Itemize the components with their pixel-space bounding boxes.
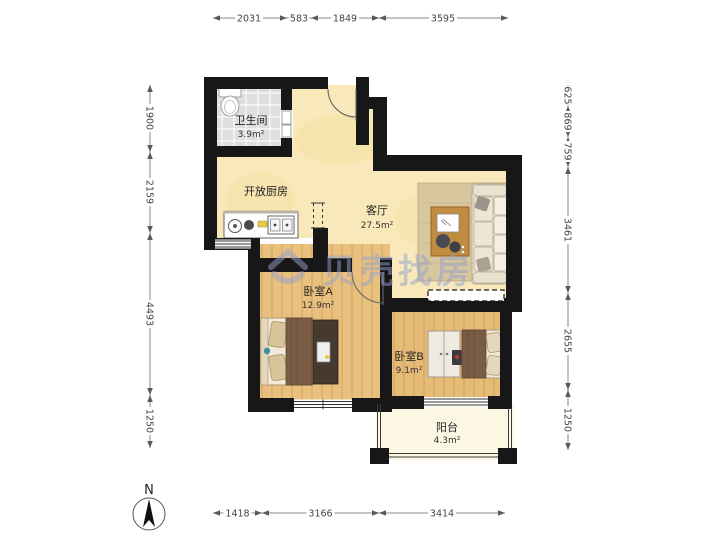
living-label: 客厅 [366,203,388,217]
svg-text:2655: 2655 [562,329,573,353]
svg-text:3461: 3461 [562,218,573,242]
kitchen-counter-icon [224,211,298,239]
svg-text:759: 759 [562,142,573,160]
floor-plan-page: 卫生间 3.9m² 开放厨房 客厅 27.5m² 卧室A 12.9m² 卧室B … [0,0,720,540]
bedroomB-window [424,397,488,407]
svg-text:3595: 3595 [431,14,455,25]
coffee-table-icon [431,207,469,256]
svg-text:869: 869 [562,112,573,130]
bathroom-area: 3.9m² [238,130,265,140]
dimension-bottom: 1418 3166 3414 [213,508,505,520]
balcony-label: 阳台 [436,420,458,434]
svg-text:4493: 4493 [144,302,155,326]
svg-text:1418: 1418 [225,509,249,520]
dimension-top: 2031 583 1849 3595 [213,13,508,25]
sofa-icon [472,184,508,284]
svg-text:1250: 1250 [562,408,573,432]
bedA-icon [261,318,338,385]
kitchen-label: 开放厨房 [244,184,288,198]
compass-north-label: N [144,483,154,498]
floor-texture [295,115,385,165]
balcony-area: 4.3m² [434,436,461,446]
floor-plan-drawing: 卫生间 3.9m² 开放厨房 客厅 27.5m² 卧室A 12.9m² 卧室B … [0,0,720,540]
compass: N [133,483,165,530]
bedroomB-area: 9.1m² [396,366,423,376]
bathroom-door-icon [280,110,293,138]
svg-text:1250: 1250 [144,409,155,433]
living-area: 27.5m² [361,221,394,231]
kitchen-window [215,240,251,249]
bedroomB-label: 卧室B [394,349,423,363]
bedB-icon [428,330,508,378]
svg-text:2031: 2031 [237,14,261,25]
bathroom-label: 卫生间 [235,113,268,127]
watermark-text: 贝壳找房 [322,253,474,291]
svg-text:1900: 1900 [144,106,155,130]
compass-north-icon [143,499,155,527]
toilet-icon [219,86,241,116]
svg-text:625: 625 [562,86,573,104]
svg-text:583: 583 [290,14,308,25]
bedroomA-area: 12.9m² [302,301,335,311]
svg-text:3414: 3414 [430,509,454,520]
svg-text:1849: 1849 [333,14,357,25]
dimension-left: 1900 2159 4493 1250 [144,85,156,448]
svg-text:2159: 2159 [144,180,155,204]
bedroomA-window [294,400,352,410]
bedroomB-sliding-marker [428,290,504,301]
svg-text:3166: 3166 [308,509,332,520]
dimension-right: 625 869 759 3461 2655 1250 [562,85,574,450]
